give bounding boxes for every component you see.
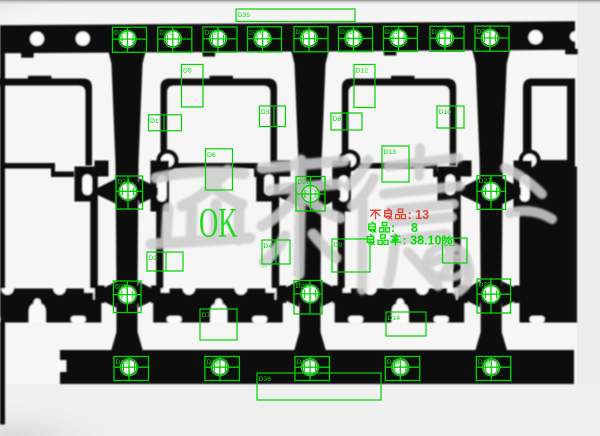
svg-text:D36: D36 (259, 376, 272, 383)
svg-text:D32: D32 (385, 29, 398, 36)
svg-text:D5: D5 (183, 68, 192, 75)
svg-text:OK: OK (199, 201, 238, 247)
svg-text:D20: D20 (114, 30, 127, 37)
svg-text:D18: D18 (387, 359, 400, 366)
svg-text:D15: D15 (116, 359, 129, 366)
svg-text::: : (391, 221, 395, 235)
svg-text:D22: D22 (205, 29, 218, 36)
svg-text:: 38.10%: : 38.10% (403, 233, 453, 247)
svg-text:D25: D25 (115, 284, 128, 291)
svg-text:D10: D10 (439, 109, 452, 116)
svg-text:D17: D17 (297, 359, 310, 366)
svg-text:D31: D31 (340, 29, 353, 36)
svg-text:D9: D9 (334, 242, 343, 249)
svg-text:D8: D8 (333, 116, 342, 123)
svg-text:D34: D34 (477, 29, 490, 36)
svg-text:D23: D23 (249, 29, 262, 36)
svg-text:D27: D27 (479, 178, 492, 185)
svg-text:D12: D12 (356, 68, 369, 75)
svg-text:D1: D1 (150, 118, 159, 125)
svg-text:D21: D21 (159, 30, 172, 37)
svg-text:D24: D24 (118, 179, 131, 186)
svg-text:D19: D19 (478, 359, 491, 366)
svg-text:D29: D29 (479, 282, 492, 289)
svg-text:D13: D13 (384, 149, 397, 156)
svg-text:D7: D7 (202, 312, 211, 319)
svg-text:D28: D28 (296, 283, 309, 290)
svg-text:D33: D33 (432, 29, 445, 36)
svg-text:D6: D6 (207, 152, 216, 159)
svg-text:D16: D16 (206, 359, 219, 366)
svg-text:D4: D4 (264, 243, 273, 250)
svg-text:D2: D2 (149, 255, 158, 262)
svg-text:D26: D26 (298, 179, 311, 186)
svg-text:D35: D35 (238, 12, 251, 19)
svg-text:D30: D30 (296, 29, 309, 36)
svg-text:D14: D14 (388, 315, 401, 322)
svg-text:D3: D3 (261, 109, 270, 116)
svg-text:: 13: : 13 (408, 208, 430, 222)
